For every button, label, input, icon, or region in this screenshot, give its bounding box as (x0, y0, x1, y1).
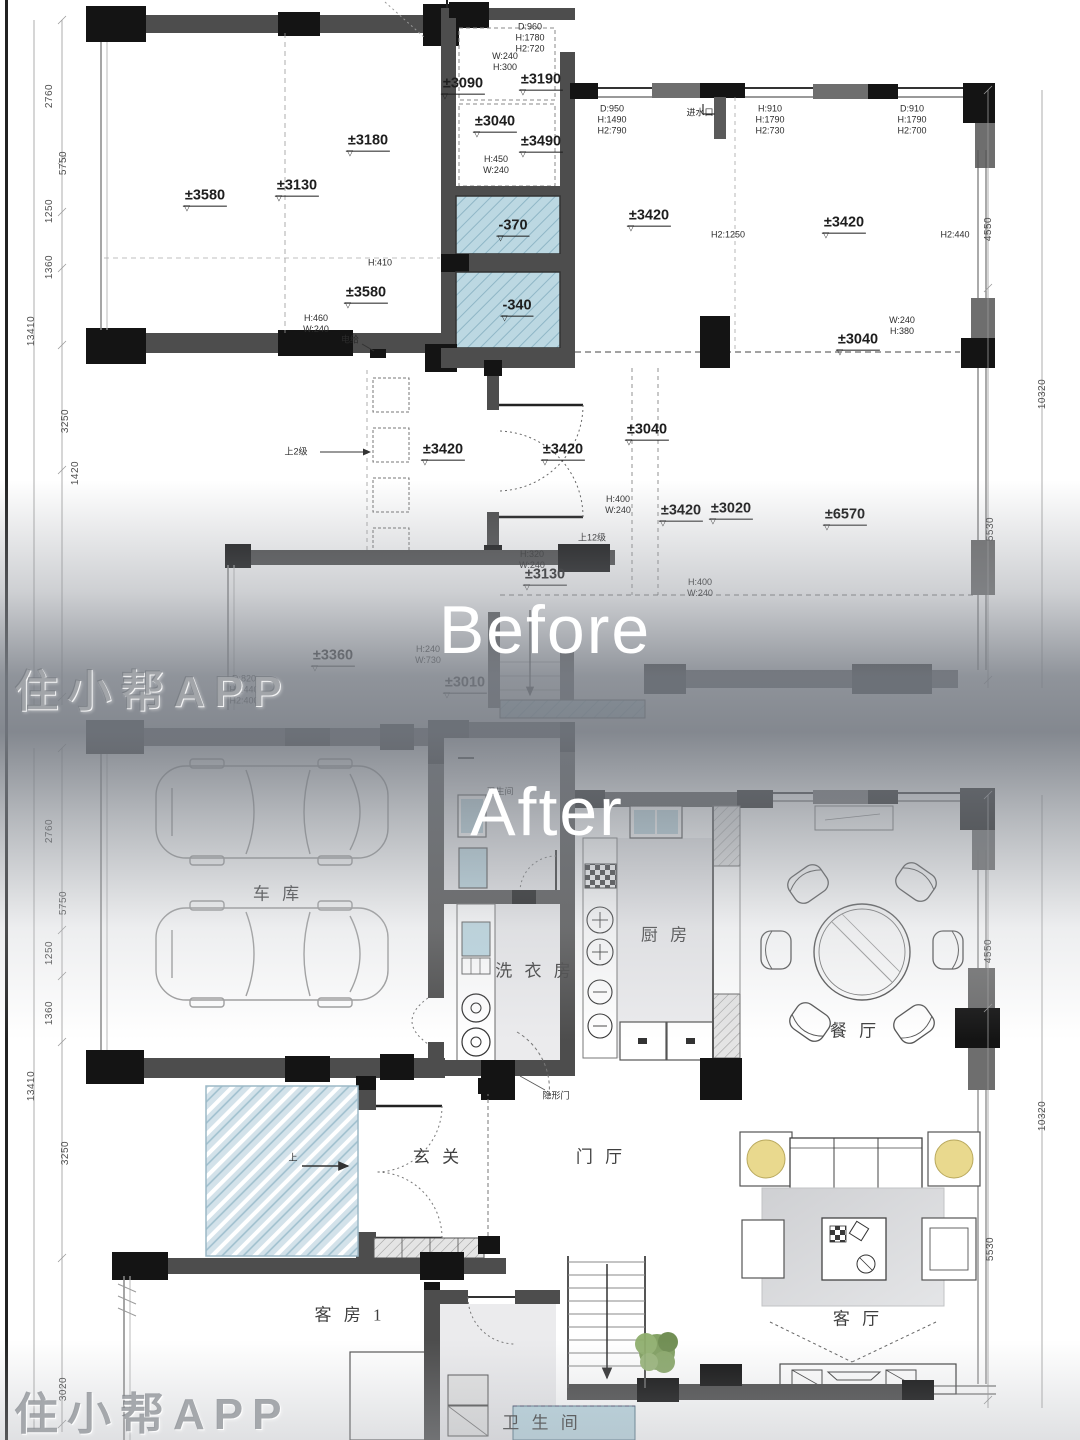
floor-plan-drawing (0, 0, 1080, 1440)
watermark-middle: 住小帮APP (14, 655, 290, 719)
floorplan-page: ±3580±3180±3130±3090±3190±3040±3490±3420… (0, 0, 1080, 1440)
after-caption: After (470, 773, 624, 851)
before-caption: Before (439, 591, 651, 669)
watermark-bottom: 住小帮APP (14, 1378, 290, 1440)
